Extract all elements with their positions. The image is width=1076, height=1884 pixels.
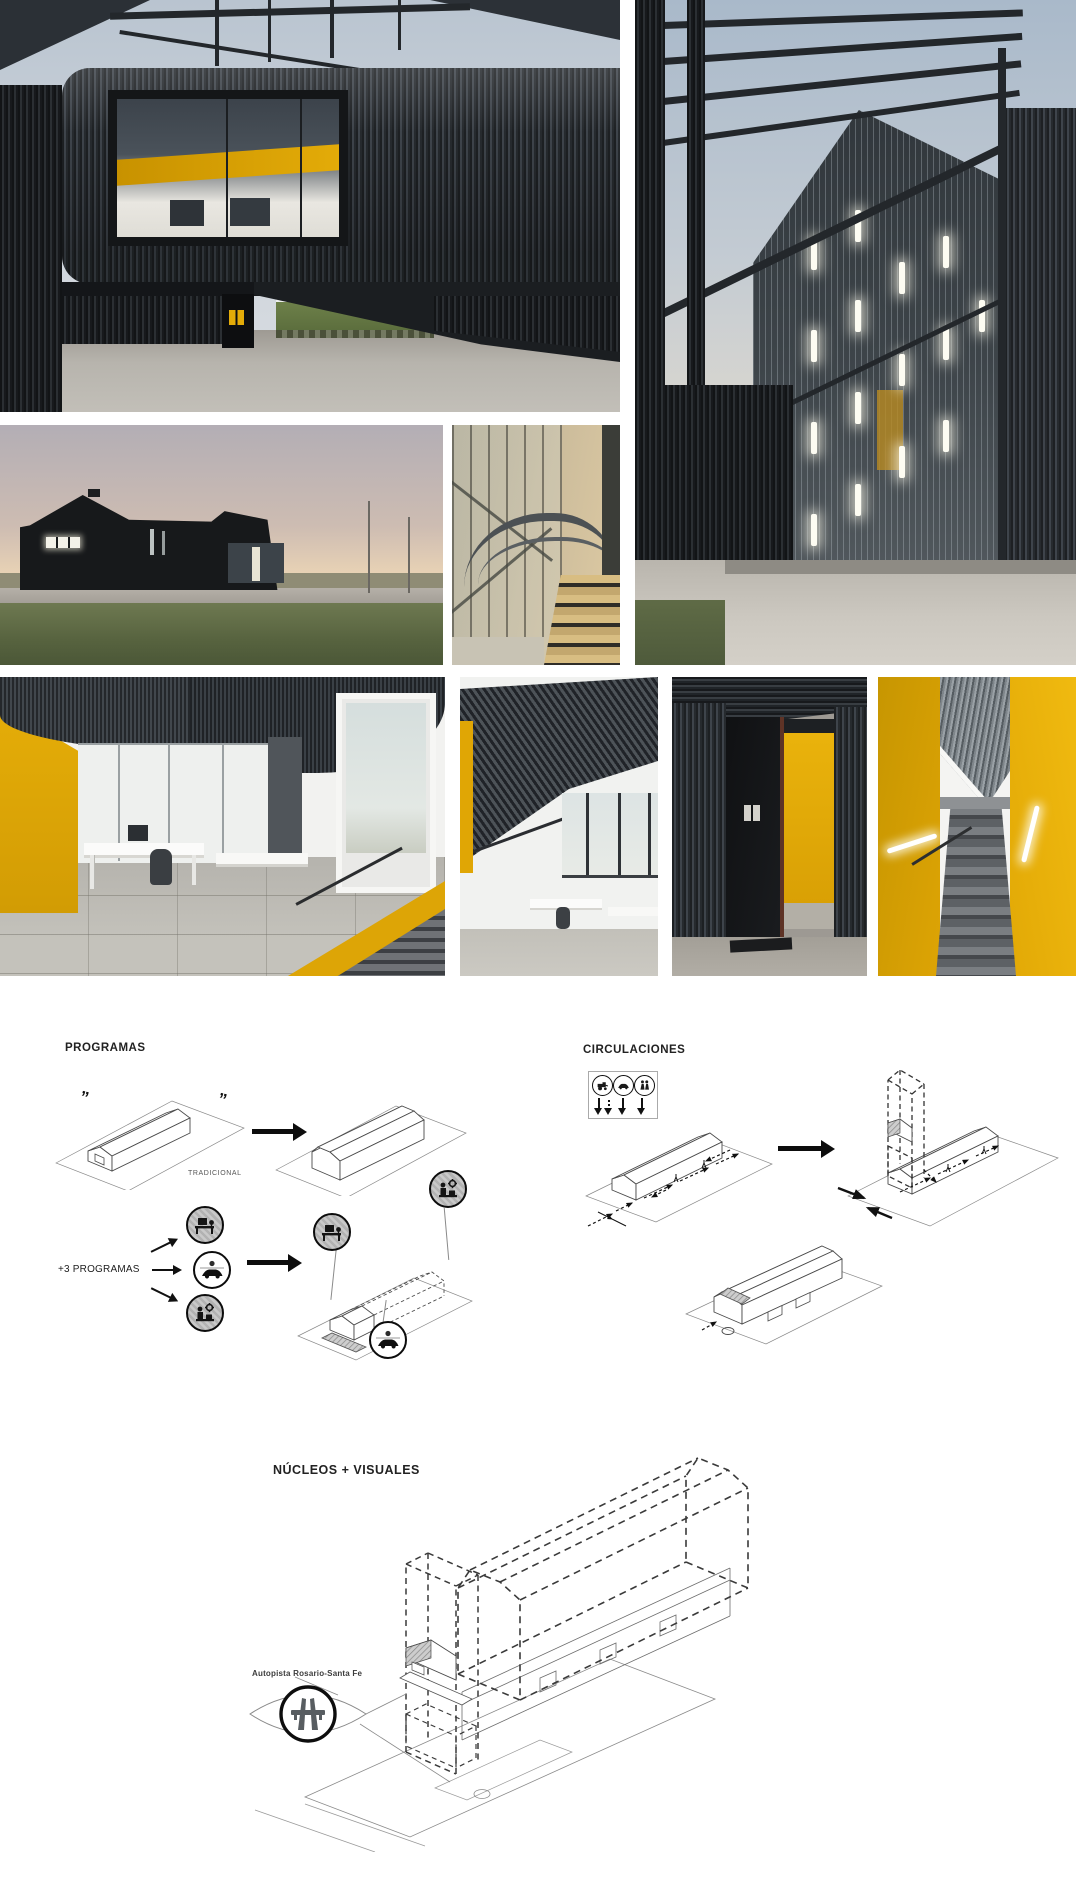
corridor-floor xyxy=(784,903,834,929)
arrow-right xyxy=(247,1260,289,1265)
circulation-axonometric-bottom xyxy=(676,1238,891,1353)
arrow-right xyxy=(778,1146,822,1151)
workshop-icon xyxy=(429,1170,467,1208)
pergola-right-post xyxy=(998,48,1006,563)
window-band xyxy=(562,793,658,877)
car-icon xyxy=(193,1251,231,1289)
circulaciones-title: CIRCULACIONES xyxy=(583,1044,685,1056)
presentation-board: PROGRAMAS ” ” TRADICIONAL +3 PROGRAMAS xyxy=(0,0,1076,1884)
people-icon xyxy=(634,1075,655,1096)
grass-patch xyxy=(635,600,725,665)
lit-slot xyxy=(855,300,861,332)
desk-leg-frame xyxy=(90,855,95,889)
pergola-beam xyxy=(663,9,1023,29)
partition-mullion xyxy=(222,743,224,861)
programas-title: PROGRAMAS xyxy=(65,1042,146,1054)
window-sky-view xyxy=(346,703,426,853)
corridor-back-yellow-wall xyxy=(784,729,834,915)
road-strip xyxy=(0,588,443,604)
lit-slot xyxy=(855,392,861,424)
lit-slot xyxy=(899,446,905,478)
lit-slot xyxy=(943,236,949,268)
lit-slot xyxy=(811,422,817,454)
white-desk xyxy=(216,853,308,864)
lit-slot xyxy=(855,484,861,516)
monitor xyxy=(128,825,148,841)
desk-leg-frame xyxy=(192,855,196,885)
autopista-label: Autopista Rosario-Santa Fe xyxy=(252,1669,362,1678)
photo-stair-yellow-walls xyxy=(878,677,1076,976)
window-sill xyxy=(562,875,658,878)
right-corrugated-panel xyxy=(1005,108,1076,563)
side-corrugated-wall xyxy=(0,85,62,412)
harvester-icon xyxy=(592,1075,613,1096)
ground-shadow xyxy=(725,560,1076,574)
photo-office-yellow-wall xyxy=(0,677,445,976)
open-black-door xyxy=(726,717,784,941)
office-chair xyxy=(150,849,172,885)
roof-beam xyxy=(110,3,470,19)
light-pole xyxy=(408,517,410,593)
window-interior-desk xyxy=(170,200,204,226)
light-pole xyxy=(368,501,370,593)
entry-door-light xyxy=(252,547,260,581)
window-mullion xyxy=(586,793,589,877)
lit-slot xyxy=(943,328,949,360)
roof-mullion xyxy=(330,0,334,58)
lit-slot xyxy=(899,354,905,386)
landing-shadow xyxy=(940,797,1010,809)
lit-slot xyxy=(811,514,817,546)
photo-exterior-sunset xyxy=(0,425,443,665)
lit-slot xyxy=(943,420,949,452)
right-corrugated-wall xyxy=(834,707,867,953)
yellow-wall-sliver xyxy=(460,721,473,873)
car-icon xyxy=(613,1075,634,1096)
workspace-icon xyxy=(186,1206,224,1244)
stair-treads xyxy=(936,807,1016,976)
branch-arrow-up xyxy=(151,1241,172,1253)
lit-vertical-slot xyxy=(150,529,154,555)
office-chair xyxy=(556,907,570,929)
left-corrugated-wall xyxy=(672,703,726,951)
dark-wall-panel xyxy=(268,737,302,859)
door-edge-strip xyxy=(780,717,784,941)
roof-vent xyxy=(88,489,100,497)
field-shrub-row xyxy=(276,330,434,338)
left-yellow-wall xyxy=(878,677,940,976)
midground-low-wall xyxy=(665,385,793,585)
car-icon xyxy=(369,1321,407,1359)
branch-arrow-mid xyxy=(152,1269,174,1271)
floor xyxy=(460,929,658,976)
lit-vertical-slot xyxy=(162,531,165,555)
window-divider xyxy=(68,537,70,548)
photo-stairwell-glass xyxy=(452,425,620,665)
photo-entry-black-door xyxy=(672,677,867,976)
roof-mullion xyxy=(398,0,401,50)
window-mullion xyxy=(226,99,228,237)
window-mullion xyxy=(618,793,621,877)
photo-facade-window xyxy=(0,0,620,412)
right-column xyxy=(602,425,620,575)
lit-slot xyxy=(811,330,817,362)
workshop-icon xyxy=(186,1294,224,1332)
window-divider xyxy=(56,537,58,548)
photo-office-double-height xyxy=(460,677,658,976)
window-interior-desk xyxy=(230,198,270,226)
pergola-beam xyxy=(663,33,1023,65)
lit-slot xyxy=(899,262,905,294)
window-mullion xyxy=(300,99,302,237)
corridor-ceiling xyxy=(784,719,834,733)
nucleos-axonometric xyxy=(210,1452,785,1852)
plus-programas-label: +3 PROGRAMAS xyxy=(58,1264,140,1275)
branch-arrow-down xyxy=(151,1287,172,1299)
lawn-foreground xyxy=(0,603,443,665)
photo-corner-dusk xyxy=(635,0,1076,665)
tradicional-label: TRADICIONAL xyxy=(188,1170,242,1177)
workspace-icon xyxy=(313,1213,351,1251)
circulation-axonometric-right xyxy=(836,1050,1076,1245)
circulation-axonometric-left xyxy=(578,1098,778,1240)
undercroft-left-wall xyxy=(62,296,222,344)
door-logo-mark xyxy=(229,310,244,325)
right-yellow-wall xyxy=(1010,677,1076,976)
floor-concrete xyxy=(452,637,544,665)
white-desk xyxy=(608,907,658,916)
white-desk xyxy=(84,843,204,855)
lit-window-band xyxy=(46,537,80,548)
roof-mullion xyxy=(215,0,219,66)
door-logo-mark xyxy=(744,805,760,821)
window-mullion xyxy=(648,793,651,877)
